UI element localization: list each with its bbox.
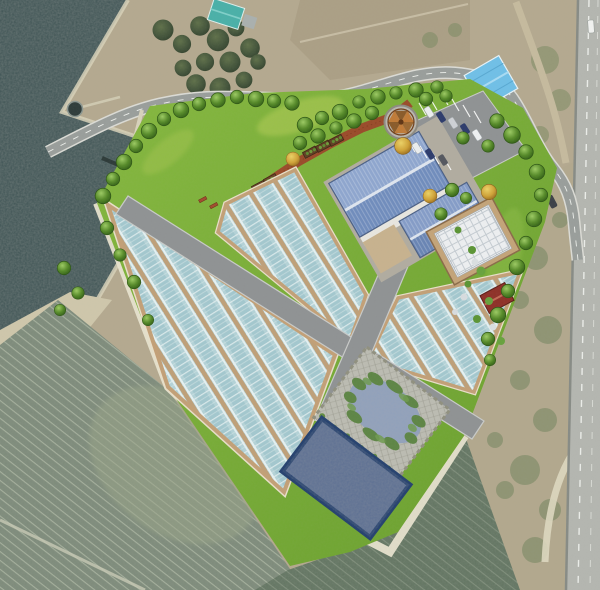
photo-grain-overlay xyxy=(0,0,600,590)
aerial-site-plan xyxy=(0,0,600,590)
site-plan-canvas xyxy=(0,0,600,590)
